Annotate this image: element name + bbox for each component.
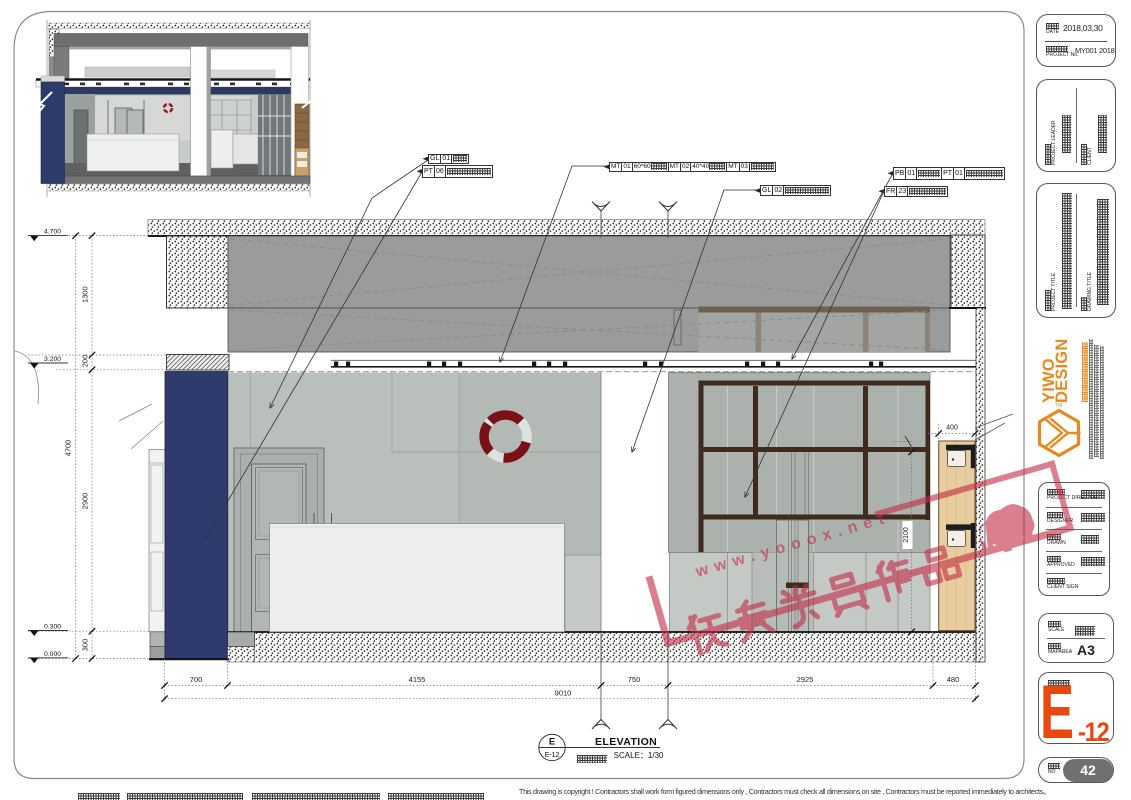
svg-text:4700: 4700 <box>64 440 73 457</box>
svg-text:2900: 2900 <box>80 493 89 510</box>
svg-text:700: 700 <box>190 675 203 684</box>
svg-text:0.300: 0.300 <box>44 624 61 631</box>
svg-text:E-12: E-12 <box>545 752 560 759</box>
svg-text:ELEVATION: ELEVATION <box>595 736 657 748</box>
svg-text:750: 750 <box>628 675 641 684</box>
svg-text:300: 300 <box>80 639 89 652</box>
svg-text:E: E <box>549 737 555 748</box>
svg-text:200: 200 <box>80 355 89 368</box>
svg-text:TM: TM <box>1055 403 1062 409</box>
svg-text:0.000: 0.000 <box>44 651 61 658</box>
svg-text:2925: 2925 <box>797 675 814 684</box>
svg-text:4155: 4155 <box>409 675 426 684</box>
svg-text:9010: 9010 <box>555 689 572 698</box>
svg-text:3.200: 3.200 <box>44 356 61 363</box>
svg-text:400: 400 <box>946 425 958 432</box>
svg-text:480: 480 <box>947 675 960 684</box>
svg-text:4.700: 4.700 <box>44 229 61 236</box>
svg-text:1300: 1300 <box>80 286 89 303</box>
